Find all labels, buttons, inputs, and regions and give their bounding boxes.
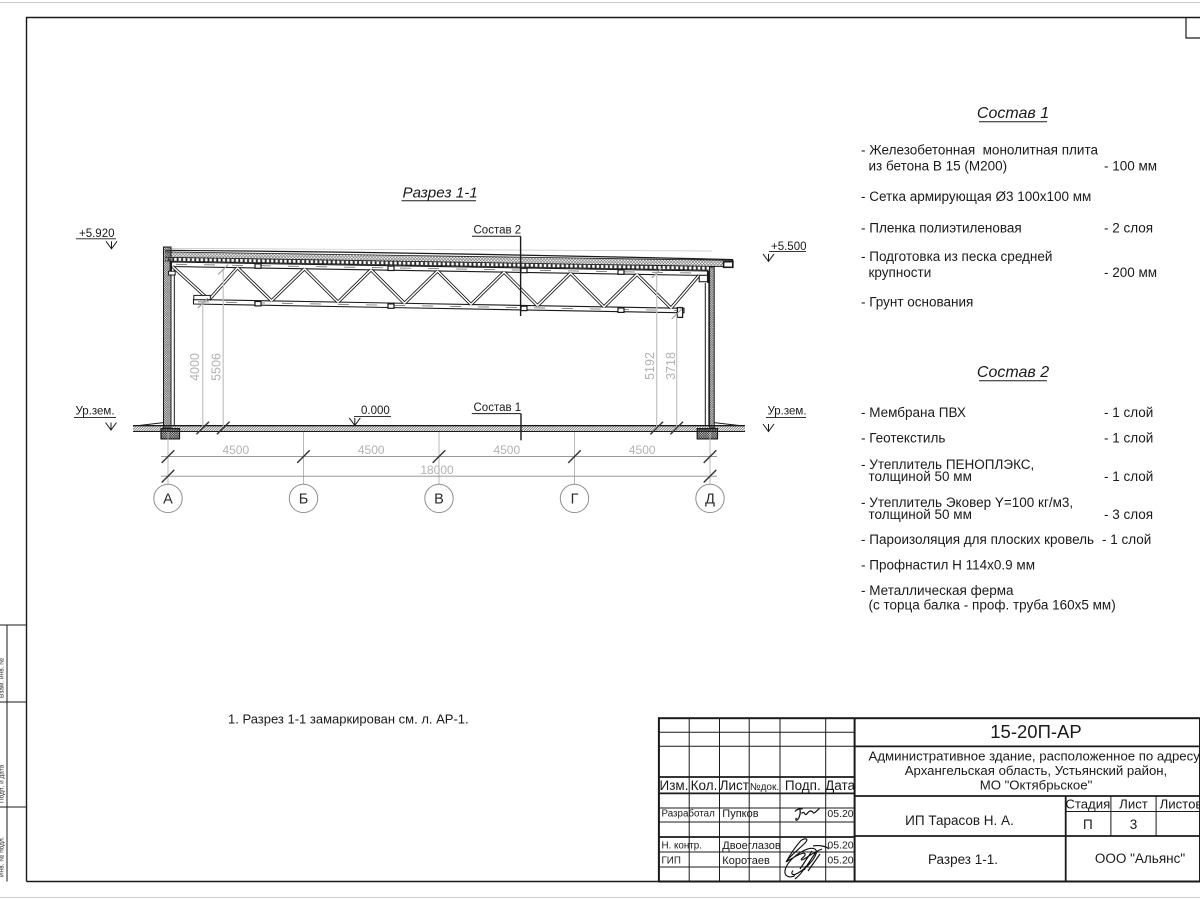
svg-text:Взам. инв. №: Взам. инв. № [0, 658, 6, 698]
svg-text:Архангельская область, Устьянс: Архангельская область, Устьянский район, [905, 763, 1167, 778]
svg-text:Разрез 1-1.: Разрез 1-1. [928, 852, 998, 867]
svg-text:Подп.: Подп. [785, 778, 821, 793]
svg-text:Лист: Лист [720, 778, 749, 793]
svg-text:Двоеглазов: Двоеглазов [722, 840, 781, 852]
svg-text:Д: Д [705, 492, 715, 508]
svg-text:- Металлическая ферма: - Металлическая ферма [861, 583, 1014, 598]
svg-text:- Геотекстиль: - Геотекстиль [861, 431, 945, 446]
svg-text:(с торца балка - проф. труба 1: (с торца балка - проф. труба 160x5 мм) [869, 598, 1116, 613]
svg-text:Изм.: Изм. [660, 778, 689, 793]
svg-text:Г: Г [571, 492, 579, 508]
svg-text:- Железобетонная монолитная п: - Железобетонная монолитная плита [861, 143, 1098, 158]
svg-text:Листов: Листов [1160, 797, 1200, 812]
svg-text:Состав 1: Состав 1 [977, 105, 1049, 122]
svg-text:ИП Тарасов Н. А.: ИП Тарасов Н. А. [905, 813, 1014, 828]
svg-text:Кол.: Кол. [691, 778, 718, 793]
svg-text:- 200 мм: - 200 мм [1104, 265, 1157, 280]
svg-text:3: 3 [1130, 817, 1138, 832]
svg-text:- Профнастил Н 114x0.9 мм: - Профнастил Н 114x0.9 мм [861, 558, 1035, 573]
svg-text:4500: 4500 [222, 443, 249, 457]
svg-text:- 100 мм: - 100 мм [1104, 159, 1157, 174]
svg-text:- 3 слоя: - 3 слоя [1104, 507, 1153, 522]
svg-text:крупности: крупности [869, 265, 932, 280]
svg-text:- Пленка полиэтиленовая: - Пленка полиэтиленовая [861, 221, 1022, 236]
svg-text:Состав 1: Состав 1 [474, 402, 522, 414]
svg-text:- 1 слой: - 1 слой [1104, 431, 1153, 446]
svg-text:0.000: 0.000 [361, 405, 390, 417]
svg-text:Б: Б [299, 492, 309, 508]
svg-text:В: В [434, 492, 444, 508]
svg-text:- Пароизоляция для плоских кро: - Пароизоляция для плоских кровель [861, 532, 1094, 547]
svg-text:А: А [163, 492, 173, 508]
svg-text:05.20: 05.20 [827, 808, 853, 820]
svg-text:Разрез 1-1: Разрез 1-1 [403, 185, 478, 202]
svg-text:- 1 слой: - 1 слой [1104, 405, 1153, 420]
svg-text:3718: 3718 [664, 352, 678, 380]
svg-text:4500: 4500 [629, 443, 656, 457]
svg-text:4500: 4500 [493, 443, 520, 457]
svg-text:Инв. № подл.: Инв. № подл. [0, 836, 6, 877]
svg-text:Дата: Дата [825, 778, 855, 793]
svg-text:- Сетка армирующая Ø3 100x100: - Сетка армирующая Ø3 100x100 мм [861, 189, 1091, 204]
svg-text:15-20П-АР: 15-20П-АР [990, 721, 1081, 742]
svg-text:Ур.зем.: Ур.зем. [768, 406, 807, 418]
svg-text:- Мембрана ПВХ: - Мембрана ПВХ [861, 405, 966, 420]
svg-text:4500: 4500 [358, 443, 385, 457]
svg-text:Разработал: Разработал [662, 809, 716, 820]
svg-text:Состав 2: Состав 2 [977, 364, 1049, 381]
svg-text:ООО "Альянс": ООО "Альянс" [1095, 851, 1185, 866]
svg-text:Коротаев: Коротаев [722, 855, 770, 867]
svg-text:- Грунт основания: - Грунт основания [861, 295, 973, 310]
svg-text:Состав 2: Состав 2 [474, 225, 522, 237]
svg-text:№док.: №док. [750, 782, 779, 793]
svg-text:Административное здание, распо: Административное здание, расположенное п… [869, 748, 1200, 763]
svg-text:5192: 5192 [643, 352, 657, 380]
svg-text:Стадия: Стадия [1065, 797, 1110, 812]
svg-text:- 2 слоя: - 2 слоя [1104, 221, 1153, 236]
svg-text:толщиной 50 мм: толщиной 50 мм [869, 469, 972, 484]
svg-text:МО "Октябрьское": МО "Октябрьское" [980, 777, 1093, 792]
svg-text:Ур.зем.: Ур.зем. [76, 406, 115, 418]
svg-text:05.20: 05.20 [827, 855, 853, 867]
svg-text:- 1 слой: - 1 слой [1104, 469, 1153, 484]
svg-text:4000: 4000 [188, 353, 202, 381]
svg-text:+5.920: +5.920 [79, 228, 115, 240]
svg-text:05.20: 05.20 [827, 840, 853, 852]
svg-text:Подп. и дата: Подп. и дата [0, 764, 6, 803]
svg-text:18000: 18000 [420, 463, 454, 477]
svg-text:Н. контр.: Н. контр. [662, 840, 702, 851]
svg-text:толщиной 50 мм: толщиной 50 мм [869, 507, 972, 522]
svg-text:1. Разрез 1-1 замаркирован см.: 1. Разрез 1-1 замаркирован см. л. АР-1. [228, 712, 469, 727]
svg-text:Пупков: Пупков [722, 808, 758, 820]
svg-text:П: П [1083, 817, 1093, 832]
svg-text:из бетона В 15 (М200): из бетона В 15 (М200) [869, 159, 1008, 174]
svg-text:5506: 5506 [209, 353, 223, 381]
svg-text:ГИП: ГИП [662, 855, 681, 866]
svg-text:Лист: Лист [1119, 797, 1148, 812]
svg-text:- Подготовка из песка средней: - Подготовка из песка средней [861, 249, 1052, 264]
svg-text:- 1 слой: - 1 слой [1102, 532, 1151, 547]
